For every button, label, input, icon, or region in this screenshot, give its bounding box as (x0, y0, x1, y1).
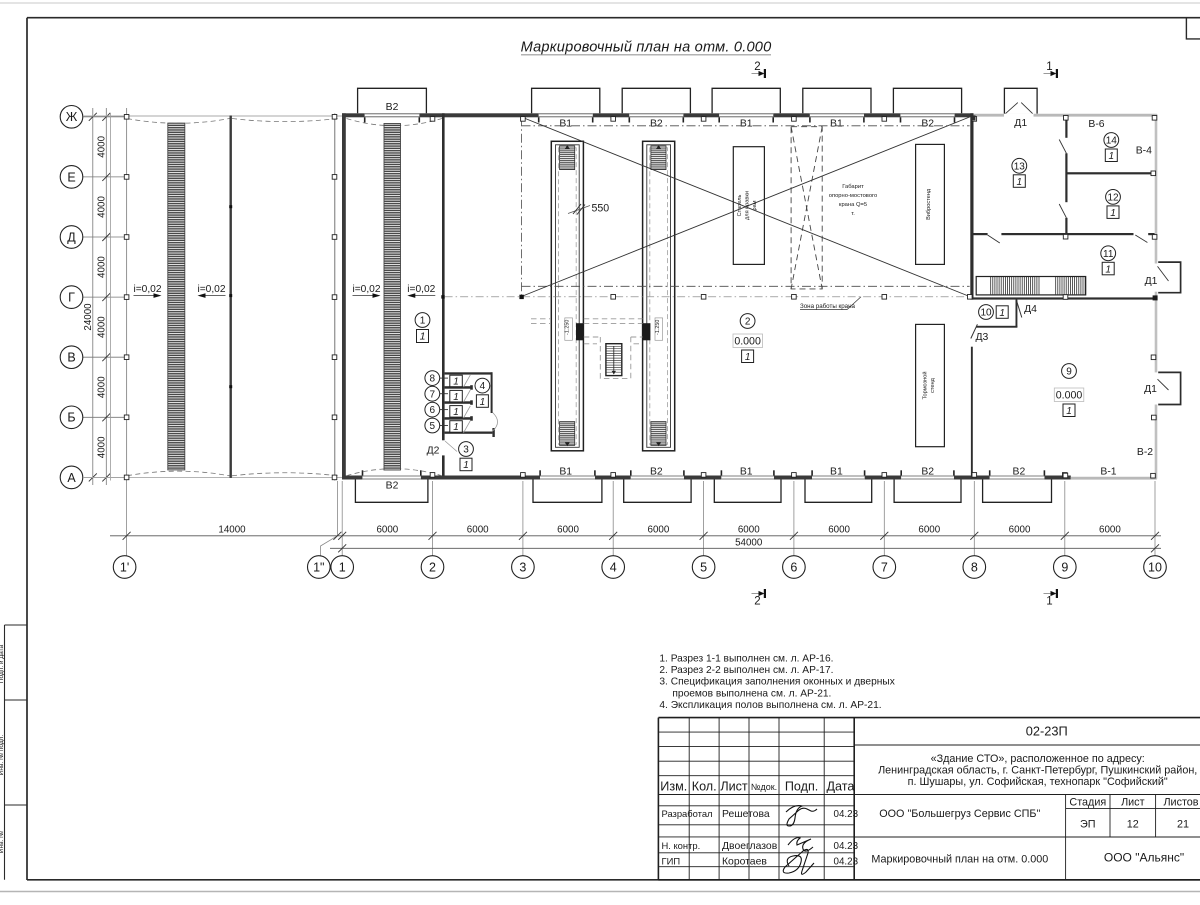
svg-text:550: 550 (592, 203, 610, 215)
svg-text:В2: В2 (1013, 466, 1026, 477)
svg-text:6000: 6000 (648, 525, 670, 536)
svg-text:1: 1 (420, 331, 426, 343)
svg-text:В2: В2 (386, 481, 399, 492)
svg-text:1: 1 (480, 397, 486, 408)
svg-text:8: 8 (430, 374, 436, 385)
svg-text:4. Экспликация полов выполнена: 4. Экспликация полов выполнена см. л. АР… (659, 700, 881, 711)
svg-text:1: 1 (453, 422, 459, 433)
svg-text:Кол.: Кол. (692, 780, 717, 794)
svg-text:Ж: Ж (66, 110, 78, 124)
svg-text:0.000: 0.000 (1056, 390, 1083, 402)
svg-text:т.: т. (851, 211, 855, 217)
svg-text:1: 1 (463, 460, 469, 471)
svg-text:ЭП: ЭП (1080, 819, 1096, 831)
svg-text:В1: В1 (740, 466, 753, 477)
svg-text:крана Q=5: крана Q=5 (839, 202, 867, 208)
svg-text:Д1: Д1 (1144, 384, 1157, 395)
svg-text:6000: 6000 (1009, 525, 1031, 536)
svg-text:9: 9 (1066, 367, 1072, 378)
svg-text:21: 21 (1177, 819, 1189, 831)
svg-text:1: 1 (745, 352, 751, 363)
svg-text:6: 6 (790, 560, 797, 574)
svg-text:Е: Е (67, 170, 75, 184)
svg-text:В1: В1 (559, 119, 572, 130)
svg-text:11: 11 (1103, 249, 1114, 260)
svg-text:13: 13 (1014, 161, 1026, 172)
svg-text:В2: В2 (650, 466, 663, 477)
svg-text:8: 8 (971, 560, 978, 574)
svg-text:-1.250: -1.250 (565, 320, 571, 335)
svg-text:7: 7 (881, 560, 888, 574)
svg-text:-1.250: -1.250 (655, 320, 661, 335)
svg-text:1: 1 (453, 407, 459, 418)
svg-text:14: 14 (1106, 136, 1118, 147)
svg-text:12: 12 (1127, 819, 1139, 831)
svg-text:В2: В2 (921, 466, 934, 477)
svg-text:Д1: Д1 (1014, 118, 1027, 129)
svg-text:В-6: В-6 (1088, 119, 1104, 130)
svg-text:04.23: 04.23 (834, 841, 859, 852)
svg-text:«Здание СТО», расположенное по: «Здание СТО», расположенное по адресу: (931, 753, 1145, 765)
svg-text:2: 2 (745, 317, 751, 328)
svg-text:Двоеглазов: Двоеглазов (722, 841, 778, 852)
svg-text:Стадия: Стадия (1069, 797, 1106, 809)
svg-text:1: 1 (339, 560, 346, 574)
svg-text:стенд: стенд (930, 377, 936, 392)
svg-text:6: 6 (430, 405, 436, 416)
svg-text:Н. контр.: Н. контр. (662, 840, 701, 851)
svg-text:Маркировочный план на отм. 0.0: Маркировочный план на отм. 0.000 (521, 40, 772, 56)
svg-text:В-4: В-4 (1136, 145, 1152, 156)
svg-text:Лист: Лист (720, 780, 748, 794)
svg-text:4: 4 (480, 381, 486, 392)
svg-text:Габарит: Габарит (842, 184, 864, 190)
svg-text:Разработал: Разработал (662, 808, 713, 819)
svg-text:Г: Г (68, 291, 75, 305)
svg-text:1: 1 (999, 308, 1005, 319)
svg-text:Дата: Дата (826, 780, 854, 794)
svg-text:2: 2 (754, 596, 760, 608)
svg-text:№док.: №док. (751, 782, 777, 792)
svg-text:7: 7 (430, 389, 436, 400)
svg-text:В1: В1 (830, 119, 843, 130)
svg-text:Коротаев: Коротаев (722, 857, 767, 868)
svg-text:4000: 4000 (96, 376, 107, 398)
svg-text:4000: 4000 (96, 196, 107, 218)
svg-text:24000: 24000 (83, 303, 94, 331)
svg-text:Д2: Д2 (427, 445, 440, 456)
svg-text:1: 1 (1109, 151, 1115, 162)
svg-text:6000: 6000 (738, 525, 760, 536)
svg-text:6000: 6000 (1099, 525, 1121, 536)
svg-text:6000: 6000 (376, 525, 398, 536)
svg-text:1: 1 (1046, 596, 1052, 608)
svg-text:02-23П: 02-23П (1026, 723, 1068, 738)
svg-text:i=0,02: i=0,02 (133, 284, 161, 295)
svg-text:Подп. и дата: Подп. и дата (0, 644, 5, 683)
svg-text:5: 5 (430, 421, 436, 432)
svg-text:1: 1 (1110, 208, 1116, 219)
svg-text:1. Разрез 1-1 выполнен см. л.: 1. Разрез 1-1 выполнен см. л. АР-16. (659, 654, 833, 665)
svg-text:ООО "Альянс": ООО "Альянс" (1104, 851, 1184, 865)
svg-text:Ленинградская область, г. Санк: Ленинградская область, г. Санкт-Петербур… (878, 765, 1197, 777)
svg-text:1': 1' (120, 560, 129, 574)
svg-text:В: В (67, 351, 75, 365)
svg-text:А: А (67, 471, 76, 485)
svg-text:Решетова: Решетова (722, 809, 770, 820)
svg-text:4000: 4000 (96, 316, 107, 338)
svg-text:п. Шушары, ул. Софийская, техн: п. Шушары, ул. Софийская, технопарк "Соф… (908, 776, 1168, 788)
svg-text:i=0,02: i=0,02 (352, 284, 380, 295)
svg-text:i=0,02: i=0,02 (197, 284, 225, 295)
svg-text:1: 1 (420, 316, 426, 327)
svg-text:Инв. № подл.: Инв. № подл. (0, 735, 5, 776)
svg-text:проемов выполнена см. л. АР-21: проемов выполнена см. л. АР-21. (672, 688, 831, 699)
svg-text:Изм.: Изм. (660, 780, 687, 794)
svg-text:В1: В1 (740, 119, 753, 130)
svg-text:Лист: Лист (1121, 797, 1145, 809)
svg-text:3: 3 (463, 445, 469, 456)
svg-text:Листов: Листов (1163, 797, 1198, 809)
svg-text:ООО "Большегруз Сервис СПБ": ООО "Большегруз Сервис СПБ" (879, 808, 1040, 820)
svg-text:Д4: Д4 (1024, 304, 1037, 315)
svg-text:1: 1 (1046, 61, 1052, 73)
svg-text:2: 2 (754, 61, 760, 73)
svg-text:Б: Б (67, 411, 75, 425)
svg-text:04.23: 04.23 (834, 857, 859, 868)
svg-text:1: 1 (1017, 177, 1023, 188)
svg-text:5: 5 (700, 560, 707, 574)
svg-text:6000: 6000 (467, 525, 489, 536)
svg-text:0.000: 0.000 (734, 336, 761, 348)
svg-text:1: 1 (1105, 264, 1111, 275)
svg-text:В1: В1 (830, 466, 843, 477)
svg-text:6000: 6000 (557, 525, 579, 536)
svg-text:Зона работы крана: Зона работы крана (800, 303, 855, 310)
svg-text:Д: Д (67, 230, 76, 244)
svg-text:1: 1 (453, 392, 459, 403)
svg-text:1: 1 (1066, 406, 1072, 417)
svg-text:4000: 4000 (96, 256, 107, 278)
svg-text:Вибростенд: Вибростенд (926, 188, 932, 220)
svg-text:ГИП: ГИП (662, 856, 681, 867)
svg-text:В2: В2 (921, 119, 934, 130)
svg-text:10: 10 (1148, 560, 1162, 574)
svg-text:2. Разрез 2-2 выполнен см. л.: 2. Разрез 2-2 выполнен см. л. АР-17. (659, 665, 833, 676)
svg-text:В2: В2 (650, 119, 663, 130)
svg-text:9: 9 (1061, 560, 1068, 574)
svg-text:2: 2 (429, 560, 436, 574)
svg-text:04.23: 04.23 (834, 809, 859, 820)
svg-text:Д1: Д1 (1145, 276, 1158, 287)
svg-text:3: 3 (519, 560, 526, 574)
svg-text:i=0,02: i=0,02 (407, 284, 435, 295)
svg-text:Подп.: Подп. (785, 780, 818, 794)
svg-text:опорно-мостового: опорно-мостового (829, 193, 878, 199)
svg-text:1": 1" (313, 560, 324, 574)
svg-text:Д3: Д3 (976, 332, 989, 343)
svg-text:14000: 14000 (218, 525, 246, 536)
svg-text:Инв. №: Инв. № (0, 831, 5, 853)
svg-text:6000: 6000 (918, 525, 940, 536)
svg-text:4: 4 (610, 560, 617, 574)
svg-text:Маркировочный план на отм. 0.0: Маркировочный план на отм. 0.000 (871, 854, 1048, 866)
svg-text:4000: 4000 (96, 135, 107, 157)
svg-text:4000: 4000 (96, 436, 107, 458)
svg-text:6000: 6000 (828, 525, 850, 536)
svg-text:Тормозной: Тормозной (922, 372, 929, 400)
svg-text:В-2: В-2 (1137, 447, 1153, 458)
svg-text:В-1: В-1 (1100, 466, 1116, 477)
svg-text:12: 12 (1107, 193, 1119, 204)
svg-text:3. Спецификация заполнения око: 3. Спецификация заполнения оконных и две… (659, 676, 894, 688)
svg-text:В1: В1 (559, 466, 572, 477)
svg-text:54000: 54000 (735, 537, 763, 548)
svg-text:1: 1 (453, 377, 459, 388)
svg-text:10: 10 (980, 308, 992, 319)
